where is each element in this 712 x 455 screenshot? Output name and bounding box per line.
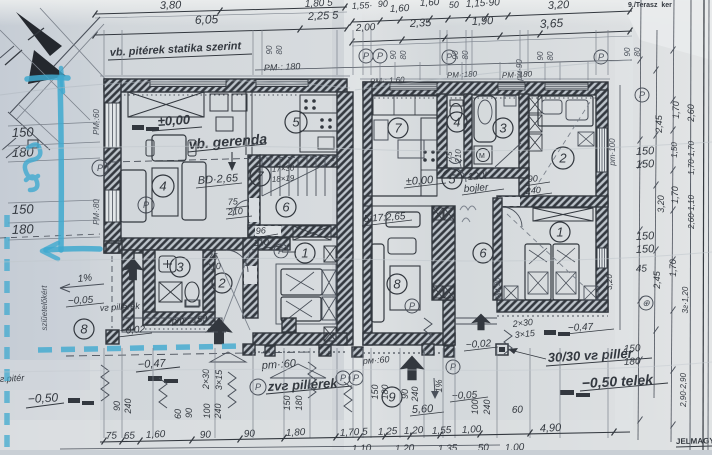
svg-text:4,90: 4,90 [540, 422, 563, 435]
svg-text:90: 90 [389, 50, 398, 59]
svg-text:1,70 5: 1,70 5 [340, 427, 369, 439]
svg-text:150: 150 [624, 343, 642, 355]
svg-text:80: 80 [461, 50, 470, 59]
svg-text:1%: 1% [434, 379, 444, 392]
svg-text:180: 180 [12, 221, 35, 237]
svg-text:г.pitér: г.pitér [0, 373, 26, 384]
svg-text:240: 240 [482, 399, 492, 415]
svg-text:P: P [97, 163, 103, 173]
svg-text:90: 90 [400, 389, 410, 399]
svg-text:1,00: 1,00 [462, 424, 482, 436]
svg-text:2,00: 2,00 [355, 22, 376, 34]
svg-text:8: 8 [80, 322, 88, 337]
svg-text:3,20: 3,20 [656, 195, 666, 213]
svg-text:5: 5 [448, 172, 456, 187]
svg-text:2,25 5: 2,25 5 [307, 9, 340, 23]
svg-text:1,90: 1,90 [472, 15, 495, 28]
svg-text:P: P [278, 246, 284, 256]
svg-text:1,00: 1,00 [505, 442, 525, 450]
svg-text:5: 5 [292, 115, 300, 130]
svg-text:65: 65 [124, 430, 136, 442]
svg-text:⊕: ⊕ [642, 298, 650, 308]
svg-text:90: 90 [184, 408, 194, 418]
svg-text:2×30: 2×30 [201, 369, 211, 390]
svg-text:P: P [255, 382, 261, 392]
svg-text:150: 150 [12, 201, 35, 217]
svg-text:120l: 120l [467, 171, 487, 183]
svg-text:1,25: 1,25 [378, 426, 398, 438]
svg-text:240: 240 [410, 386, 420, 402]
svg-text:80: 80 [399, 50, 408, 59]
svg-text:3: 3 [176, 260, 184, 275]
svg-text:1,70: 1,70 [671, 101, 681, 119]
svg-text:4: 4 [159, 179, 166, 194]
svg-text:5,60: 5,60 [412, 403, 435, 416]
svg-text:P: P [639, 90, 645, 100]
svg-text:2,60: 2,60 [686, 104, 696, 123]
svg-text:3,65: 3,65 [539, 16, 563, 31]
svg-text:7: 7 [256, 169, 264, 184]
svg-text:1,55: 1,55 [432, 425, 452, 437]
svg-text:180: 180 [624, 356, 642, 368]
svg-text:P: P [353, 373, 359, 383]
svg-text:pm·:60: pm·:60 [260, 358, 297, 372]
svg-text:2,45: 2,45 [652, 270, 662, 290]
svg-text:96: 96 [255, 225, 266, 236]
svg-text:18×19: 18×19 [272, 173, 296, 184]
svg-text:210: 210 [252, 237, 269, 248]
svg-text:3: 3 [499, 121, 507, 136]
svg-text:1%: 1% [77, 273, 93, 285]
svg-text:75: 75 [106, 430, 118, 442]
svg-text:6: 6 [479, 246, 487, 261]
svg-text:1,70·1,70: 1,70·1,70 [687, 141, 696, 175]
svg-text:45: 45 [636, 263, 648, 275]
svg-text:2,60·1,10: 2,60·1,10 [687, 195, 696, 230]
svg-text:90: 90 [200, 429, 212, 441]
svg-text:180: 180 [380, 384, 390, 399]
svg-text:240: 240 [524, 185, 541, 196]
svg-text:1,60: 1,60 [420, 0, 440, 9]
svg-text:sziйetelőkért: sziйetelőkért [40, 285, 49, 331]
svg-text:2: 2 [558, 151, 567, 166]
svg-text:3г·1,20: 3г·1,20 [681, 286, 690, 313]
svg-text:100: 100 [202, 403, 212, 418]
svg-text:1,80: 1,80 [286, 427, 306, 439]
svg-text:PM·: 180: PM·: 180 [264, 61, 301, 73]
svg-text:−0,50: −0,50 [27, 390, 58, 406]
svg-text:150: 150 [636, 230, 656, 243]
svg-text:M: M [479, 153, 485, 160]
svg-text:90: 90 [527, 173, 538, 184]
svg-text:1,35: 1,35 [438, 443, 458, 450]
svg-text:240: 240 [213, 403, 223, 419]
svg-text:3,20: 3,20 [548, 0, 571, 12]
svg-text:240: 240 [123, 398, 133, 414]
svg-text:vг pillérek: vг pillérek [100, 301, 141, 313]
svg-text:150: 150 [636, 158, 656, 171]
svg-text:180: 180 [294, 395, 304, 410]
svg-text:7: 7 [394, 121, 402, 136]
svg-text:150: 150 [370, 384, 380, 399]
svg-text:1,10: 1,10 [352, 443, 372, 450]
svg-text:pм·:60: pм·:60 [361, 354, 389, 366]
svg-text:P: P [340, 373, 346, 383]
svg-text:80: 80 [275, 45, 284, 54]
svg-text:1: 1 [556, 225, 563, 240]
svg-text:90: 90 [265, 45, 274, 54]
svg-text:150: 150 [12, 124, 35, 140]
svg-text:1,70: 1,70 [670, 186, 680, 204]
svg-text:3,80: 3,80 [160, 0, 183, 12]
svg-text:6,05: 6,05 [195, 12, 219, 27]
svg-text:90: 90 [244, 428, 256, 440]
svg-text:150: 150 [636, 243, 656, 256]
svg-text:60: 60 [512, 404, 524, 416]
svg-text:pм.90: pм.90 [493, 277, 502, 300]
svg-text:9./Terasz ker: 9./Terasz ker [628, 2, 672, 9]
svg-text:1,70: 1,70 [668, 259, 678, 277]
svg-text:80: 80 [546, 51, 555, 60]
svg-text:90: 90 [536, 51, 545, 60]
svg-text:50: 50 [449, 0, 460, 10]
svg-text:P: P [409, 301, 415, 311]
svg-text:90: 90 [623, 47, 632, 56]
svg-text:P: P [377, 51, 383, 61]
svg-text:JELMAGY: JELMAGY [676, 436, 712, 446]
svg-text:60: 60 [173, 409, 183, 419]
svg-text:75: 75 [445, 151, 454, 160]
svg-text:90: 90 [378, 0, 389, 9]
svg-text:2,45: 2,45 [654, 114, 664, 134]
svg-text:1,80 5: 1,80 5 [305, 0, 334, 10]
svg-text:1,60: 1,60 [146, 429, 166, 441]
svg-text:P: P [363, 51, 369, 61]
svg-text:17×30: 17×30 [272, 163, 296, 174]
svg-text:PM·:60: PM·:60 [92, 109, 101, 135]
svg-text:8: 8 [393, 277, 401, 292]
svg-text:2,90·2,90: 2,90·2,90 [679, 373, 688, 408]
svg-text:2,35: 2,35 [409, 17, 433, 30]
svg-text:1,60: 1,60 [390, 3, 410, 15]
svg-text:4: 4 [453, 115, 460, 130]
svg-text:90: 90 [112, 401, 122, 411]
svg-text:210: 210 [204, 261, 221, 272]
svg-text:±0,00: ±0,00 [157, 112, 191, 129]
svg-text:50: 50 [478, 442, 490, 450]
svg-text:100: 100 [470, 399, 480, 414]
svg-text:1,20: 1,20 [395, 443, 415, 450]
svg-text:1,20: 1,20 [404, 425, 424, 437]
svg-text:3,20: 3,20 [605, 274, 614, 290]
svg-text:PM·:80: PM·:80 [92, 199, 101, 225]
svg-text:6: 6 [282, 200, 290, 215]
svg-text:3×15: 3×15 [214, 369, 224, 390]
svg-text:1,55·: 1,55· [352, 0, 373, 11]
svg-text:150: 150 [636, 145, 656, 158]
svg-text:pm·100: pm·100 [608, 138, 617, 167]
svg-text:2: 2 [217, 276, 226, 291]
svg-text:150: 150 [282, 395, 292, 410]
